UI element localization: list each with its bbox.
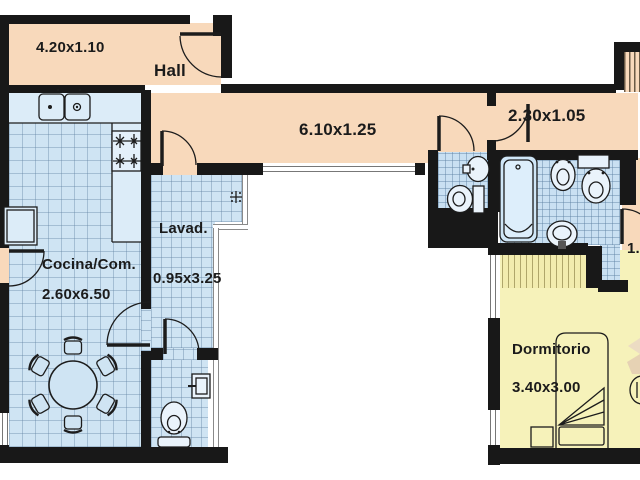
stove-icon xyxy=(112,131,141,171)
chair-icon xyxy=(64,416,82,433)
bedroom-dims-label: 3.40x3.00 xyxy=(512,379,581,396)
desk-chair-icon xyxy=(630,376,640,404)
chair-icon xyxy=(27,393,50,417)
kitchen-dims-label: 2.60x6.50 xyxy=(42,286,111,303)
shelf-icon xyxy=(578,155,609,168)
toilet-icon xyxy=(158,402,190,447)
toilet-icon xyxy=(582,169,610,203)
wc-door-icon xyxy=(165,319,199,354)
kitchen-west-door-icon xyxy=(9,251,44,286)
washbasin-icon xyxy=(463,157,489,182)
nightstand-icon xyxy=(531,427,553,447)
entrance-door-icon xyxy=(180,34,221,77)
chair-icon xyxy=(27,353,50,377)
chair-icon xyxy=(95,353,118,377)
laundry-label: Lavad. xyxy=(159,220,208,237)
chair-icon xyxy=(64,338,82,355)
fridge-icon xyxy=(4,207,37,245)
bathtub-icon xyxy=(500,156,537,242)
hand-basin-icon xyxy=(188,374,210,398)
toilet-icon xyxy=(448,186,485,214)
floor-plan: 4.20x1.10 Hall 6.10x1.25 2.30x1.05 Cocin… xyxy=(0,0,640,480)
hall-label: Hall xyxy=(154,61,186,81)
chair-icon xyxy=(95,393,118,417)
laundry-dims-label: 0.95x3.25 xyxy=(153,270,222,287)
laundry-door-icon xyxy=(162,131,196,166)
kitchen-label: Cocina/Com. xyxy=(42,256,136,273)
passage-dims-label: 2.30x1.05 xyxy=(508,106,585,126)
desk-partial xyxy=(627,338,640,374)
side-passage-dims-label: 1. xyxy=(627,240,640,257)
fixtures-layer xyxy=(0,0,640,480)
double-sink-icon xyxy=(39,89,90,120)
bidet-icon xyxy=(551,160,575,191)
hall-dims-label: 4.20x1.10 xyxy=(36,39,105,56)
bedroom-label: Dormitorio xyxy=(512,341,591,358)
corridor-dims-label: 6.10x1.25 xyxy=(299,120,376,140)
kitchen-laundry-door-icon xyxy=(107,302,150,345)
toilet-room-door-icon xyxy=(439,116,474,151)
washbasin-icon xyxy=(547,221,577,249)
washer-drain-icon xyxy=(230,191,242,203)
dining-table-icon xyxy=(27,338,118,433)
